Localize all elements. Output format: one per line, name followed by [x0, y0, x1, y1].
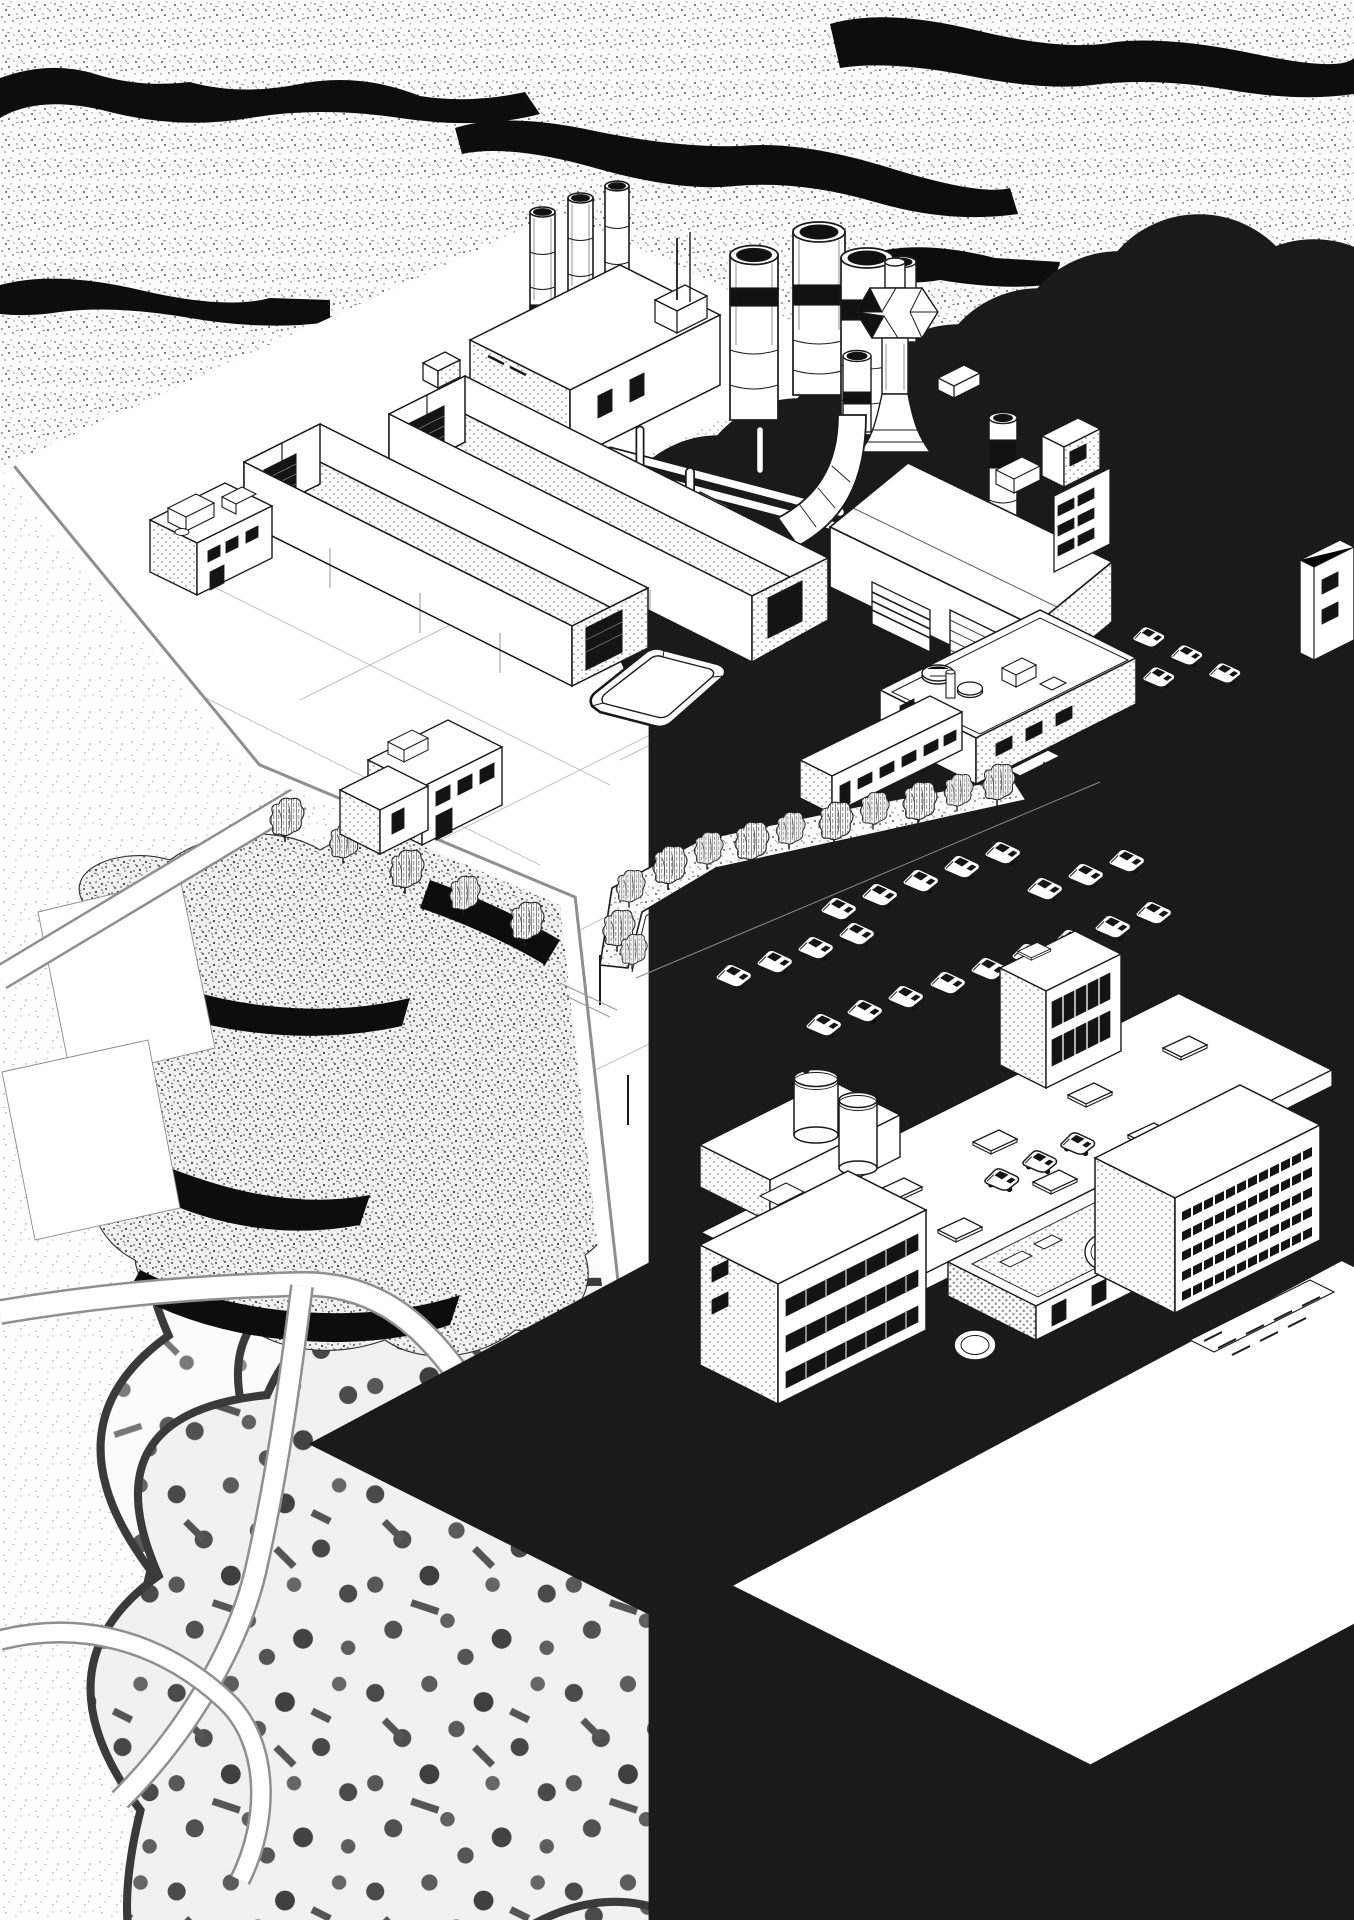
roof-fan — [958, 682, 983, 698]
storage-tank — [794, 1067, 838, 1143]
illustration-canvas: Aerial manga illustration of an industri… — [0, 0, 1354, 1920]
process-stack — [730, 246, 778, 421]
edge-building — [1300, 540, 1354, 660]
manga-aerial-illustration: Aerial manga illustration of an industri… — [0, 0, 1354, 1920]
storage-tank — [839, 1093, 877, 1176]
process-stack — [793, 222, 845, 395]
